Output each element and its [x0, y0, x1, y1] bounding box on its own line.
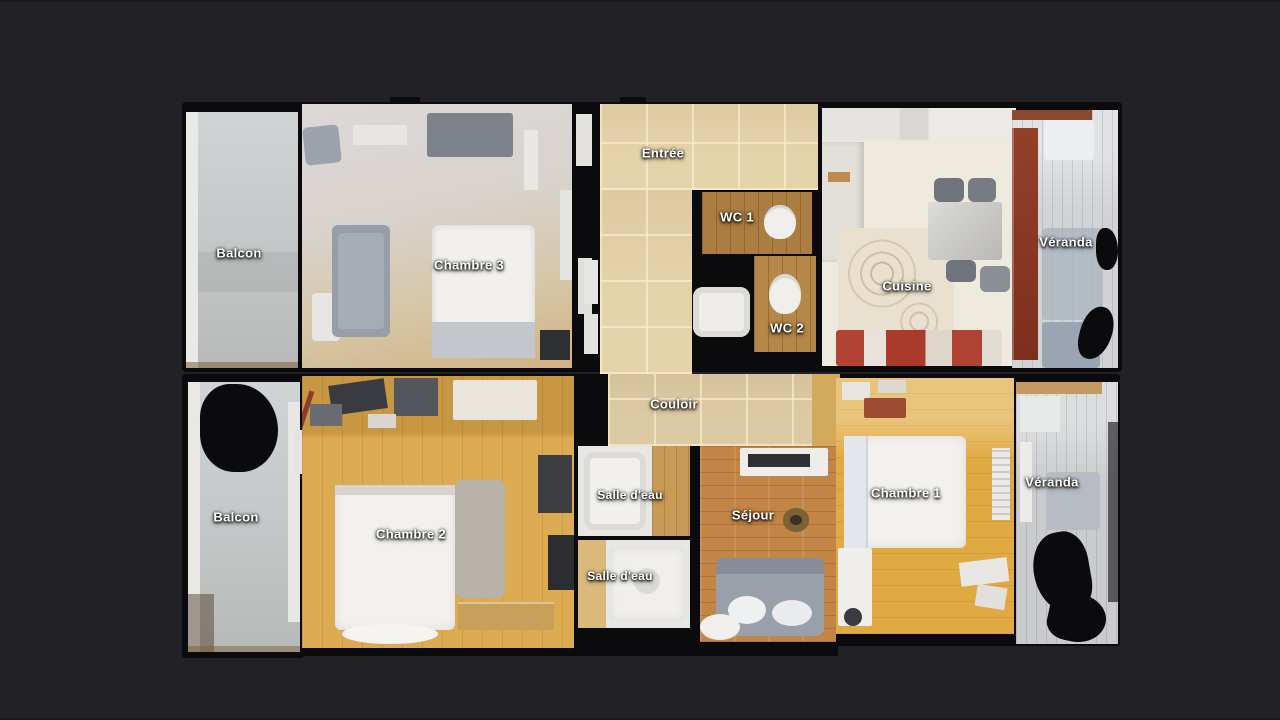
- armchairs: [302, 124, 342, 166]
- dollhouse-viewport: Balcon Chambre 3 Entrée WC 1 WC 2 Cuisin…: [0, 0, 1280, 720]
- white-patch: [1044, 120, 1094, 160]
- floorplan-3d-view[interactable]: Balcon Chambre 3 Entrée WC 1 WC 2 Cuisin…: [180, 100, 1125, 660]
- kitchen-table: [928, 202, 1002, 260]
- room-chambre-1[interactable]: [836, 378, 1014, 634]
- balcony-rail-white: [186, 112, 198, 368]
- room-label-chambre-1: Chambre 1: [871, 486, 941, 501]
- blanket-spill: [342, 624, 438, 644]
- entree-corridor[interactable]: [600, 190, 692, 374]
- tv-unit: [538, 455, 572, 513]
- room-salle-deau-2[interactable]: [578, 540, 690, 628]
- sofa: [332, 225, 390, 337]
- bed: [432, 225, 535, 358]
- room-label-sejour: Séjour: [732, 508, 774, 523]
- chair: [934, 178, 964, 202]
- radiator: [992, 448, 1010, 520]
- room-label-veranda-bas: Véranda: [1025, 475, 1078, 490]
- cutting-board: [828, 172, 850, 182]
- desk-paper: [368, 414, 396, 428]
- stool: [844, 608, 862, 626]
- room-label-entree: Entrée: [642, 146, 684, 161]
- bed-head: [335, 485, 455, 495]
- top-edge-line: [0, 0, 1280, 2]
- dark-cabinet: [548, 535, 574, 590]
- bed: [335, 485, 455, 630]
- room-label-salle-deau-2: Salle d'eau: [587, 569, 653, 583]
- room-chambre-2[interactable]: [302, 376, 574, 648]
- mirror-strip: [524, 130, 538, 190]
- chair: [980, 266, 1010, 292]
- blanket-spill: [700, 614, 740, 640]
- scan-hole: [1096, 228, 1118, 270]
- kitchen-counter-red: [836, 330, 1002, 366]
- sofa-cushions: [338, 233, 384, 329]
- room-cuisine[interactable]: [822, 108, 1016, 366]
- wall-closet-door-1: [576, 114, 592, 166]
- chair: [946, 260, 976, 282]
- room-label-balcon-haut: Balcon: [216, 246, 261, 261]
- wood-beam-top: [1012, 110, 1092, 120]
- floor-edge-brown: [186, 362, 298, 368]
- room-entree[interactable]: [600, 104, 818, 190]
- console: [740, 448, 828, 476]
- floor-edge-brown: [188, 646, 300, 652]
- dark-cabinet: [540, 330, 570, 360]
- corridor-closet-1: [584, 260, 598, 304]
- balcony-door: [294, 430, 302, 474]
- room-label-chambre-2: Chambre 2: [376, 527, 446, 542]
- white-patch: [1020, 396, 1060, 432]
- appliances-top: [822, 108, 1016, 140]
- white-box: [878, 380, 906, 393]
- room-label-salle-deau-1: Salle d'eau: [597, 488, 663, 502]
- toilet: [769, 274, 801, 314]
- room-label-veranda-haut: Véranda: [1039, 235, 1092, 250]
- floor-beige: [578, 540, 606, 628]
- room-label-balcon-bas: Balcon: [213, 510, 258, 525]
- room-label-chambre-3: Chambre 3: [434, 258, 504, 273]
- wood-strip-top: [1016, 382, 1102, 394]
- pillows: [844, 436, 868, 548]
- cushion: [772, 600, 812, 626]
- floor-shade: [188, 594, 214, 652]
- room-chambre-3[interactable]: [302, 104, 572, 368]
- room-veranda-bas[interactable]: [1016, 382, 1118, 644]
- room-wc-2[interactable]: [754, 256, 816, 352]
- scan-hole: [200, 384, 278, 472]
- room-label-couloir: Couloir: [650, 397, 698, 412]
- corridor-closet-2: [584, 314, 598, 354]
- closet-door: [560, 190, 572, 280]
- bed-blanket: [432, 322, 535, 358]
- desk-equipment: [394, 378, 438, 416]
- white-shelf: [453, 380, 537, 420]
- toilet: [764, 205, 796, 239]
- desk-equipment: [310, 404, 342, 426]
- bathtub: [693, 287, 750, 337]
- white-table: [353, 125, 407, 145]
- room-label-wc-1: WC 1: [720, 210, 754, 225]
- room-balcon-haut[interactable]: [186, 112, 298, 368]
- room-wc-1[interactable]: [702, 192, 812, 254]
- rug: [455, 480, 505, 598]
- red-dresser: [864, 398, 906, 418]
- room-couloir[interactable]: [608, 374, 812, 446]
- room-label-wc-2: WC 2: [770, 321, 804, 336]
- white-door-panel: [959, 557, 1010, 587]
- room-label-cuisine: Cuisine: [882, 279, 931, 294]
- side-table: [783, 508, 809, 532]
- room-sejour[interactable]: [700, 446, 836, 642]
- chair: [968, 178, 996, 202]
- wood-beam-left: [1012, 128, 1038, 360]
- console-decor: [748, 454, 810, 467]
- desk: [427, 113, 513, 157]
- bench: [458, 602, 554, 630]
- edge-shadow: [1108, 422, 1118, 602]
- sofa-back: [716, 558, 824, 574]
- white-door-panel: [974, 584, 1007, 610]
